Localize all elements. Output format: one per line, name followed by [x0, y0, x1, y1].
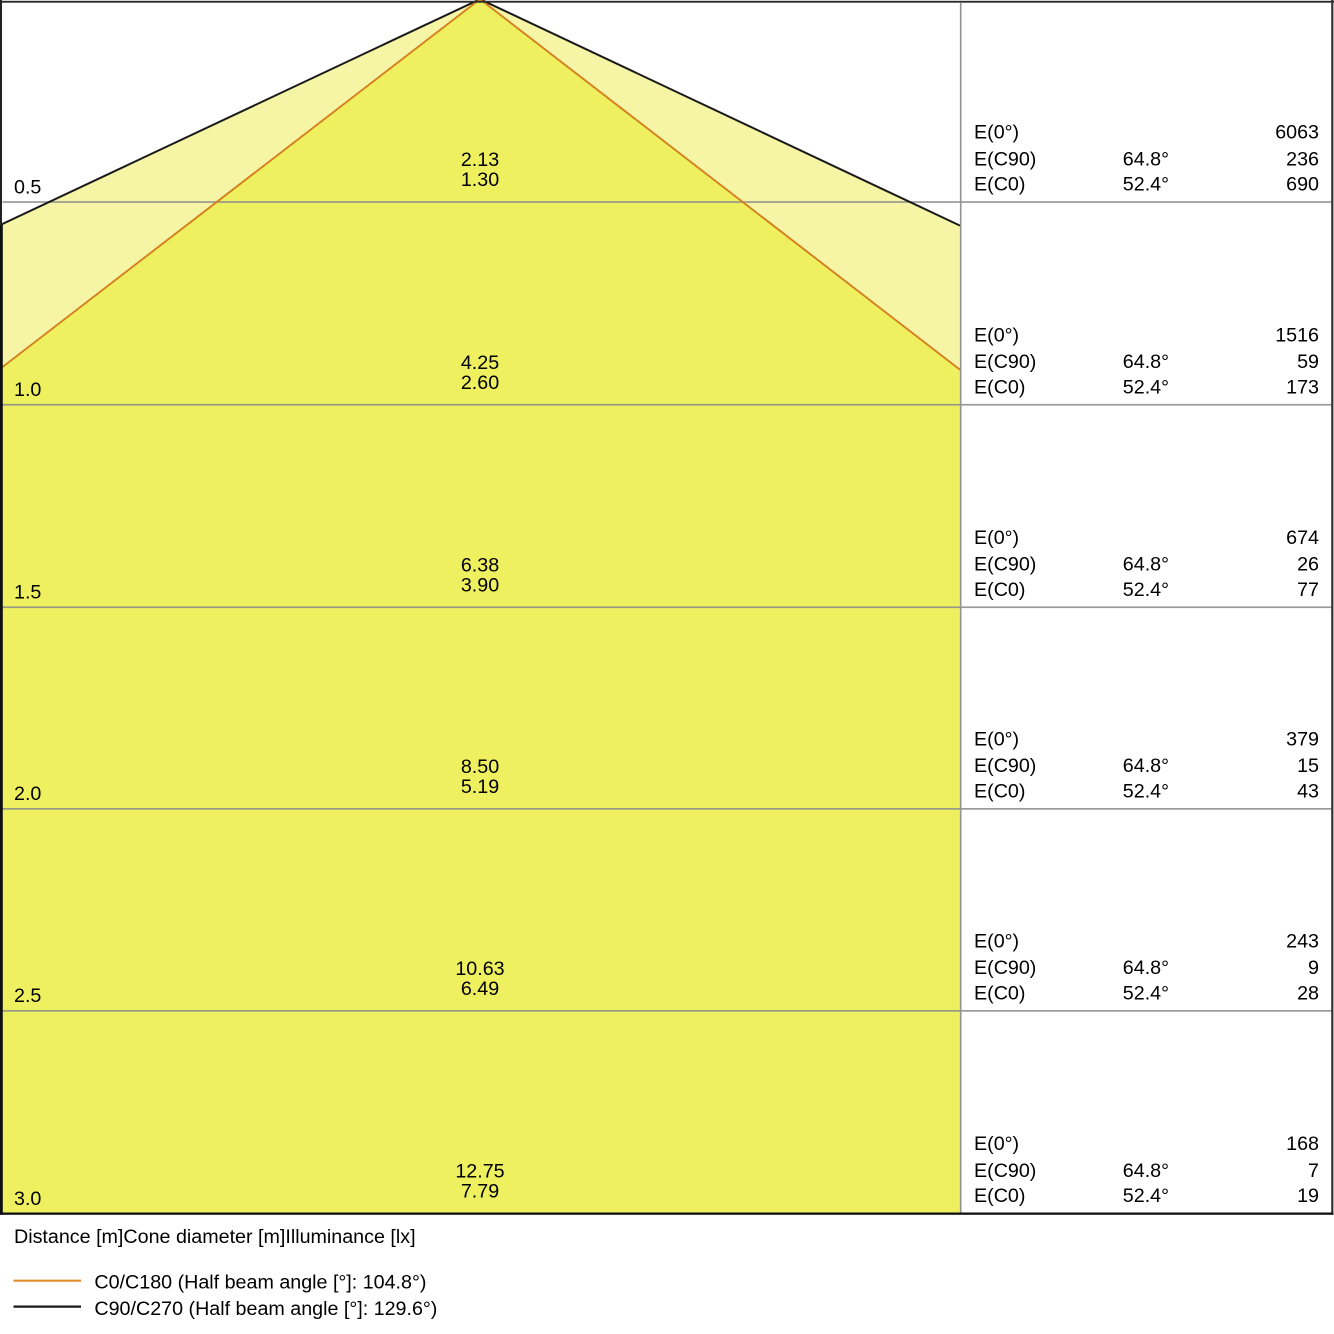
svg-text:E(0°): E(0°)	[974, 122, 1019, 144]
svg-text:E(C0): E(C0)	[974, 780, 1025, 802]
svg-text:2.13: 2.13	[461, 149, 499, 171]
svg-text:1516: 1516	[1275, 324, 1319, 346]
svg-text:379: 379	[1286, 728, 1319, 750]
svg-text:168: 168	[1286, 1133, 1319, 1155]
svg-text:E(C90): E(C90)	[974, 148, 1036, 170]
svg-text:E(0°): E(0°)	[974, 527, 1019, 549]
svg-text:3.0: 3.0	[14, 1188, 41, 1210]
svg-text:E(0°): E(0°)	[974, 930, 1019, 952]
svg-text:C90/C270 (Half beam angle [°]:: C90/C270 (Half beam angle [°]: 129.6°)	[94, 1298, 437, 1320]
svg-text:12.75: 12.75	[455, 1161, 504, 1183]
svg-text:9: 9	[1308, 957, 1319, 979]
svg-text:8.50: 8.50	[461, 756, 499, 778]
svg-text:E(0°): E(0°)	[974, 728, 1019, 750]
svg-text:43: 43	[1297, 780, 1319, 802]
svg-text:7.79: 7.79	[461, 1181, 499, 1203]
svg-text:0.5: 0.5	[14, 176, 41, 198]
svg-text:Distance [m]Cone diameter [m]I: Distance [m]Cone diameter [m]Illuminance…	[14, 1226, 416, 1248]
svg-text:6.49: 6.49	[461, 978, 499, 1000]
svg-text:15: 15	[1297, 755, 1319, 777]
svg-text:4.25: 4.25	[461, 352, 499, 374]
svg-text:243: 243	[1286, 930, 1319, 952]
svg-text:3.90: 3.90	[461, 574, 499, 596]
svg-text:E(C90): E(C90)	[974, 351, 1036, 373]
svg-text:E(C90): E(C90)	[974, 957, 1036, 979]
svg-text:E(C0): E(C0)	[974, 982, 1025, 1004]
svg-text:E(C90): E(C90)	[974, 554, 1036, 576]
svg-text:64.8°: 64.8°	[1123, 957, 1169, 979]
svg-text:C0/C180 (Half beam angle [°]:: C0/C180 (Half beam angle [°]: 104.8°)	[94, 1272, 426, 1294]
svg-text:E(C0): E(C0)	[974, 1185, 1025, 1207]
svg-text:173: 173	[1286, 376, 1319, 398]
svg-text:10.63: 10.63	[455, 958, 504, 980]
svg-text:6.38: 6.38	[461, 554, 499, 576]
svg-text:59: 59	[1297, 351, 1319, 373]
svg-text:2.5: 2.5	[14, 985, 41, 1007]
svg-text:52.4°: 52.4°	[1123, 174, 1169, 196]
svg-text:28: 28	[1297, 982, 1319, 1004]
svg-text:6063: 6063	[1275, 122, 1319, 144]
svg-text:E(C0): E(C0)	[974, 174, 1025, 196]
svg-text:52.4°: 52.4°	[1123, 982, 1169, 1004]
svg-text:52.4°: 52.4°	[1123, 780, 1169, 802]
svg-text:77: 77	[1297, 579, 1319, 601]
svg-text:E(C0): E(C0)	[974, 579, 1025, 601]
svg-text:64.8°: 64.8°	[1123, 351, 1169, 373]
svg-text:5.19: 5.19	[461, 776, 499, 798]
svg-text:1.0: 1.0	[14, 379, 41, 401]
svg-text:E(C0): E(C0)	[974, 376, 1025, 398]
svg-text:64.8°: 64.8°	[1123, 1160, 1169, 1182]
svg-text:E(C90): E(C90)	[974, 1160, 1036, 1182]
svg-text:64.8°: 64.8°	[1123, 148, 1169, 170]
svg-text:1.30: 1.30	[461, 169, 499, 191]
svg-text:690: 690	[1286, 174, 1319, 196]
svg-text:64.8°: 64.8°	[1123, 755, 1169, 777]
svg-text:E(C90): E(C90)	[974, 755, 1036, 777]
svg-text:52.4°: 52.4°	[1123, 579, 1169, 601]
svg-text:7: 7	[1308, 1160, 1319, 1182]
svg-text:2.0: 2.0	[14, 783, 41, 805]
svg-text:52.4°: 52.4°	[1123, 376, 1169, 398]
svg-text:E(0°): E(0°)	[974, 324, 1019, 346]
svg-text:E(0°): E(0°)	[974, 1133, 1019, 1155]
svg-text:64.8°: 64.8°	[1123, 554, 1169, 576]
svg-text:26: 26	[1297, 554, 1319, 576]
svg-text:52.4°: 52.4°	[1123, 1185, 1169, 1207]
svg-text:1.5: 1.5	[14, 582, 41, 604]
svg-text:2.60: 2.60	[461, 372, 499, 394]
svg-text:19: 19	[1297, 1185, 1319, 1207]
svg-text:236: 236	[1286, 148, 1319, 170]
svg-text:674: 674	[1286, 527, 1319, 549]
